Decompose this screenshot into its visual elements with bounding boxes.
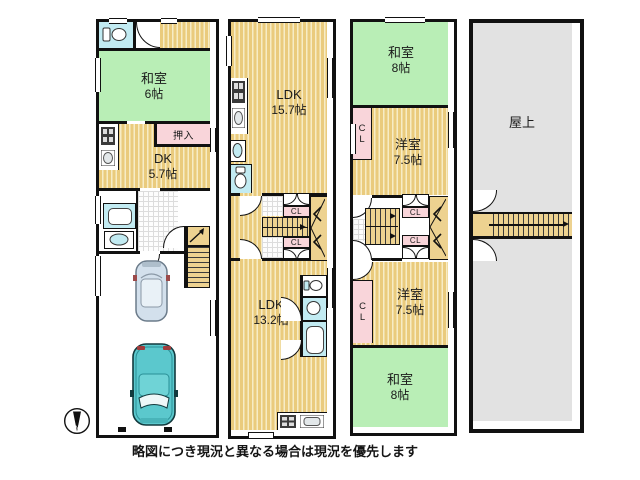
panel-floor2: LDK 15.7帖: [228, 19, 336, 439]
window-mark: [258, 17, 300, 23]
closet-label: CL: [403, 208, 428, 217]
plan-shape: [403, 247, 416, 258]
plan-shape: [282, 423, 287, 427]
room-label-yoshitsu-upper: 洋室 7.5帖: [394, 137, 423, 167]
wall: [231, 193, 240, 196]
plan-shape: [304, 281, 309, 290]
window-mark: [350, 124, 356, 154]
plan-shape: [430, 227, 446, 256]
plan-shape: [311, 199, 325, 228]
room-label-washitsu-1f: 和室 6帖: [141, 71, 167, 101]
closet-label: CL: [353, 281, 372, 343]
window-mark: [327, 268, 333, 308]
plan-shape: [310, 281, 322, 291]
plan-shape: [174, 390, 178, 397]
toilet-room: [231, 164, 252, 193]
plan-shape: [141, 279, 162, 307]
plan-shape: 和室: [388, 45, 414, 61]
wall: [154, 144, 210, 147]
toilet-icon: [101, 24, 131, 46]
plan-shape: [142, 262, 161, 267]
kitchen-counter: [231, 78, 248, 134]
window-mark: [327, 58, 333, 98]
closet-double-door-icon: [402, 194, 429, 207]
bathroom: [302, 321, 327, 357]
stairs-run: [365, 208, 400, 245]
stairs-winder: [187, 226, 210, 246]
closet-double-door-icon: [283, 193, 310, 206]
stairs-up-arrow-icon: [188, 227, 208, 244]
plan-shape: [130, 390, 134, 397]
north-arrow-icon: N: [63, 407, 91, 435]
closet-label: CL: [284, 238, 309, 247]
plan-shape: [297, 194, 310, 205]
stairs-direction-arrow-icon: [390, 213, 396, 219]
room-label-rooftop: 屋上: [509, 115, 535, 131]
window-mark: [161, 18, 177, 24]
plan-shape: [307, 302, 320, 315]
plan-shape: [311, 228, 325, 257]
garage-post: [164, 427, 172, 432]
plan-shape: [235, 112, 243, 125]
plan-shape: [233, 144, 242, 158]
stairs-run: [489, 214, 572, 236]
wall: [372, 195, 402, 198]
room-label-ldk-upper: LDK 15.7帖: [271, 87, 306, 117]
wall: [473, 236, 572, 239]
plan-shape: 5.7帖: [149, 167, 178, 181]
plan-shape: 7.5帖: [394, 153, 423, 167]
plan-shape: [108, 208, 132, 225]
window-mark: [226, 36, 232, 66]
room-label-washitsu-bottom: 和室 8帖: [387, 372, 413, 402]
winder-arrows-icon: [311, 197, 325, 259]
closet-cl: CL: [283, 206, 310, 217]
closet-cl: CL: [402, 207, 429, 218]
wall: [160, 251, 184, 254]
plan-shape: 8帖: [387, 388, 413, 402]
plan-shape: [234, 83, 238, 89]
toilet-icon: [232, 166, 249, 190]
plan-shape: 8帖: [388, 61, 414, 75]
plan-shape: 屋上: [509, 115, 535, 131]
kitchen-counter: [277, 412, 327, 430]
bathtub-icon: [306, 326, 324, 354]
plan-shape: [416, 195, 429, 206]
bathtub-icon: [103, 203, 136, 229]
plan-shape: LDK: [271, 87, 306, 103]
stairs-direction-arrow-icon: [300, 224, 306, 230]
room-label-yoshitsu-lower: 洋室 7.5帖: [396, 287, 425, 317]
plan-shape: 6帖: [141, 87, 167, 101]
closet-label: CL: [284, 207, 309, 216]
kitchen-sink-icon: [300, 415, 324, 428]
room-label-dk: DK 5.7帖: [149, 151, 178, 181]
plan-shape: [231, 141, 244, 160]
plan-shape: 和室: [387, 372, 413, 388]
room-label-washitsu-top: 和室 8帖: [388, 45, 414, 75]
plan-shape: [239, 93, 243, 99]
toilet-compartment: [302, 275, 327, 297]
plan-shape: [236, 167, 245, 173]
toilet-room: [99, 22, 133, 48]
plan-shape: [166, 275, 170, 281]
floor-plan-canvas: 和室 6帖 押入 DK 5.7帖: [0, 0, 640, 480]
panel-rooftop: 屋上: [469, 19, 584, 433]
closet-oshiire: 押入: [157, 124, 210, 144]
plan-shape: [304, 418, 320, 426]
stairs-winder: [429, 196, 448, 260]
plan-shape: [289, 423, 294, 427]
plan-shape: [105, 232, 133, 247]
washbasin-icon: [104, 231, 134, 249]
car-icon: [130, 342, 178, 427]
plan-shape: [403, 195, 416, 206]
door-swing-icon: [136, 22, 160, 48]
hall-floor: [160, 22, 210, 48]
kitchen-sink-icon: [232, 108, 245, 128]
closet-cl: CL: [353, 280, 373, 343]
window-mark: [385, 17, 425, 23]
closet-label: CL: [403, 236, 428, 245]
toilet-icon: [303, 277, 324, 294]
landing-floor: [353, 219, 365, 241]
stairs-winder: [310, 196, 327, 261]
plan-shape: [104, 153, 113, 164]
winder-arrows-icon: [430, 197, 446, 258]
plan-shape: [103, 28, 110, 41]
plan-shape: 15.7帖: [271, 103, 306, 117]
window-mark: [109, 18, 127, 24]
window-mark: [448, 112, 454, 148]
plan-shape: [232, 81, 245, 103]
plan-shape: [137, 346, 145, 350]
washbasin-icon: [231, 140, 246, 162]
plan-shape: [140, 418, 168, 423]
plan-shape: [103, 129, 107, 134]
plan-shape: [430, 199, 446, 227]
wall: [99, 251, 140, 254]
window-mark: [210, 300, 216, 336]
stairs-direction-arrow-icon: [563, 221, 569, 227]
window-mark: [448, 292, 454, 328]
window-mark: [95, 58, 101, 92]
plan-shape: [416, 247, 429, 258]
landing-floor: [262, 196, 283, 216]
stove-icon: [232, 81, 245, 103]
plan-shape: [235, 174, 246, 188]
closet-label: CL: [353, 108, 371, 159]
closet-label: 押入: [157, 124, 210, 144]
plan-shape: [284, 194, 297, 205]
kitchen-sink-icon: [101, 150, 115, 166]
disclaimer-caption: 略図につき現況と異なる場合は現況を優先します: [130, 441, 420, 460]
plan-shape: [112, 29, 126, 41]
plan-shape: [239, 83, 243, 89]
closet-cl: CL: [353, 108, 372, 160]
washbasin-room: [302, 297, 327, 321]
plan-shape: [133, 275, 137, 281]
stairs-mid-line: [366, 226, 398, 228]
stairs-landing: [473, 214, 489, 236]
stairs-run: [262, 217, 310, 237]
wall: [231, 258, 240, 261]
stove-icon: [101, 127, 115, 145]
landing-floor: [262, 237, 283, 258]
stairs-mid-line: [489, 224, 565, 226]
panel-floor3: 和室 8帖 CL 洋室 7.5帖 CL CL: [350, 19, 457, 436]
entrance-step: [248, 432, 274, 439]
plan-shape: [103, 137, 107, 142]
wall: [136, 191, 138, 251]
stove-icon: [280, 415, 296, 428]
stairs-direction-arrow-icon: [390, 233, 396, 239]
plan-shape: DK: [149, 151, 178, 167]
stairs-run: [187, 246, 210, 288]
panel-floor1: 和室 6帖 押入 DK 5.7帖: [96, 19, 219, 438]
plan-shape: [280, 415, 296, 428]
plan-shape: [109, 137, 113, 142]
car-icon: [133, 258, 170, 324]
plan-shape: [282, 417, 287, 421]
window-mark: [210, 128, 216, 152]
window-mark: [95, 196, 101, 224]
wall: [372, 258, 402, 261]
window-mark: [95, 256, 101, 296]
closet-cl: CL: [402, 235, 429, 246]
plan-shape: [234, 93, 238, 99]
plan-shape: [289, 417, 294, 421]
plan-shape: [110, 234, 128, 245]
garage-post: [118, 427, 126, 432]
plan-shape: N: [75, 426, 79, 432]
plan-shape: [139, 374, 169, 396]
plan-shape: 洋室: [396, 287, 425, 303]
plan-shape: [109, 129, 113, 134]
plan-shape: 洋室: [394, 137, 423, 153]
wall: [99, 188, 140, 191]
plan-shape: 和室: [141, 71, 167, 87]
washbasin-icon: [303, 298, 324, 318]
closet-cl: CL: [283, 237, 310, 248]
closet-double-door-icon: [402, 246, 429, 259]
kitchen-counter: [99, 124, 119, 170]
plan-shape: 7.5帖: [396, 303, 425, 317]
plan-shape: [163, 346, 171, 350]
